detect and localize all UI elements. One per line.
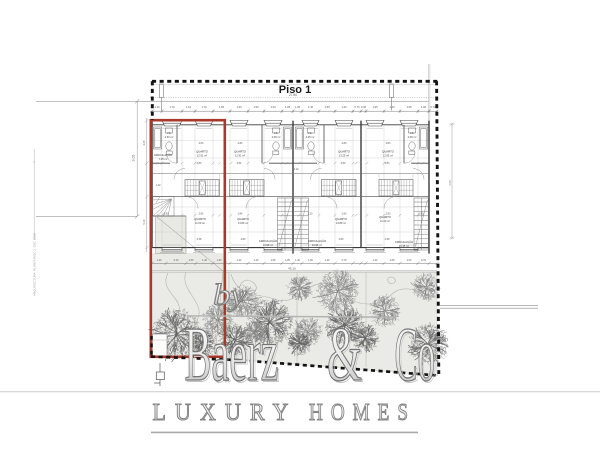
- svg-text:1.65: 1.65: [219, 105, 225, 109]
- svg-text:CIRCULAÇÃO: CIRCULAÇÃO: [395, 239, 414, 244]
- svg-text:45.16: 45.16: [288, 267, 296, 271]
- svg-text:1.50: 1.50: [308, 259, 313, 262]
- svg-text:QUARTO: QUARTO: [379, 215, 392, 219]
- svg-text:ARQUITECTURA PLANTA PISO 1 E: ARQUITECTURA PLANTA PISO 1 ESC 1:100: [33, 233, 37, 296]
- svg-text:0.70: 0.70: [421, 259, 426, 262]
- svg-text:1.65: 1.65: [406, 105, 412, 109]
- svg-text:CIRCULAÇÃO: CIRCULAÇÃO: [154, 152, 173, 157]
- svg-text:1.70: 1.70: [201, 105, 207, 109]
- svg-text:QUARTO: QUARTO: [335, 217, 348, 221]
- svg-text:15.35 m²: 15.35 m²: [399, 244, 409, 248]
- svg-text:0.70: 0.70: [354, 105, 360, 109]
- svg-text:Piso 1: Piso 1: [279, 84, 311, 96]
- svg-text:1.40: 1.40: [202, 259, 207, 262]
- svg-text:4.05 m²: 4.05 m²: [306, 135, 315, 139]
- svg-text:1.40: 1.40: [156, 184, 161, 187]
- svg-text:QUARTO: QUARTO: [382, 150, 395, 154]
- svg-text:2.83: 2.83: [386, 213, 391, 216]
- svg-text:10.96 m²: 10.96 m²: [263, 243, 273, 247]
- svg-text:1.50: 1.50: [253, 105, 259, 109]
- svg-text:&: &: [327, 311, 362, 397]
- svg-text:1.65: 1.65: [390, 259, 395, 262]
- svg-text:4.60 m²: 4.60 m²: [165, 135, 174, 139]
- svg-text:2.80: 2.80: [339, 238, 344, 241]
- svg-text:3.05: 3.05: [448, 180, 452, 186]
- svg-text:1.05: 1.05: [285, 105, 291, 109]
- svg-text:2.80: 2.80: [341, 162, 346, 165]
- svg-text:I.S.: I.S.: [274, 131, 278, 135]
- svg-text:LUXURY: LUXURY: [153, 400, 298, 426]
- svg-text:13.80 m²: 13.80 m²: [238, 221, 248, 225]
- svg-text:2.38: 2.38: [197, 238, 202, 241]
- svg-text:1.40: 1.40: [236, 105, 242, 109]
- svg-text:1.40: 1.40: [254, 259, 259, 262]
- svg-text:4.05 m²: 4.05 m²: [408, 135, 417, 139]
- svg-text:by: by: [213, 277, 246, 312]
- svg-text:13.80 m²: 13.80 m²: [336, 221, 346, 225]
- svg-text:2.80: 2.80: [342, 213, 347, 216]
- svg-text:2.83: 2.83: [385, 162, 390, 165]
- svg-text:2.84: 2.84: [238, 213, 243, 216]
- svg-text:12.91 m²: 12.91 m²: [235, 154, 245, 158]
- svg-text:1.40: 1.40: [308, 105, 314, 109]
- svg-text:1.40: 1.40: [270, 105, 276, 109]
- svg-text:1.50: 1.50: [189, 259, 194, 262]
- svg-text:2.83: 2.83: [199, 142, 204, 145]
- svg-text:1.10: 1.10: [154, 105, 160, 109]
- svg-text:QUARTO: QUARTO: [194, 217, 207, 221]
- svg-text:0.90: 0.90: [164, 213, 169, 216]
- svg-text:13.25 m²: 13.25 m²: [339, 154, 349, 158]
- svg-text:1.00: 1.00: [421, 105, 427, 109]
- svg-text:0.45: 0.45: [361, 105, 367, 109]
- svg-text:2.10: 2.10: [174, 259, 179, 262]
- svg-text:4.05 m²: 4.05 m²: [272, 135, 281, 139]
- svg-text:Co: Co: [395, 311, 436, 397]
- svg-text:2.83: 2.83: [199, 213, 204, 216]
- svg-text:1.65: 1.65: [372, 105, 378, 109]
- svg-text:2.80: 2.80: [241, 238, 246, 241]
- svg-text:2.83: 2.83: [197, 162, 202, 165]
- svg-text:7.05 m²: 7.05 m²: [159, 157, 168, 161]
- svg-text:2.38: 2.38: [385, 238, 390, 241]
- svg-text:QUARTO: QUARTO: [234, 150, 247, 154]
- svg-text:0.70: 0.70: [342, 259, 347, 262]
- svg-text:QUARTO: QUARTO: [196, 150, 209, 154]
- svg-text:CIRCULAÇÃO: CIRCULAÇÃO: [259, 238, 278, 243]
- svg-text:1.05: 1.05: [285, 259, 290, 262]
- svg-text:0.70: 0.70: [430, 105, 436, 109]
- svg-text:3.05: 3.05: [132, 155, 136, 162]
- svg-text:4.25: 4.25: [142, 140, 146, 146]
- svg-text:2.84: 2.84: [237, 162, 242, 165]
- svg-text:1.40: 1.40: [341, 105, 347, 109]
- svg-text:1.70: 1.70: [169, 105, 175, 109]
- svg-text:1.40: 1.40: [237, 259, 242, 262]
- svg-text:CIRCULAÇÃO: CIRCULAÇÃO: [308, 238, 327, 243]
- svg-text:1.00: 1.00: [407, 259, 412, 262]
- svg-text:QUARTO: QUARTO: [338, 150, 351, 154]
- svg-text:I.S.: I.S.: [167, 131, 171, 135]
- svg-text:Baerz: Baerz: [185, 311, 279, 397]
- svg-text:1.40: 1.40: [325, 259, 330, 262]
- svg-text:12.65 m²: 12.65 m²: [383, 154, 393, 158]
- svg-text:I.S.: I.S.: [308, 131, 312, 135]
- svg-text:2.80: 2.80: [342, 142, 347, 145]
- svg-text:2.84: 2.84: [238, 142, 243, 145]
- svg-text:10.96 m²: 10.96 m²: [312, 243, 322, 247]
- svg-text:I.S.: I.S.: [410, 131, 414, 135]
- svg-text:1.40: 1.40: [295, 259, 300, 262]
- svg-text:1.10: 1.10: [308, 213, 313, 216]
- svg-text:1.40: 1.40: [389, 105, 395, 109]
- svg-text:1.05: 1.05: [295, 105, 301, 109]
- svg-text:5.10: 5.10: [142, 219, 146, 225]
- svg-text:QUARTO: QUARTO: [237, 217, 250, 221]
- svg-text:2.83: 2.83: [386, 142, 391, 145]
- svg-text:1.40: 1.40: [217, 259, 222, 262]
- svg-text:1.40: 1.40: [157, 259, 162, 262]
- svg-text:11.60 m²: 11.60 m²: [380, 219, 390, 223]
- svg-text:1.10: 1.10: [294, 168, 299, 171]
- svg-text:HOMES: HOMES: [309, 400, 416, 426]
- svg-text:1.05: 1.05: [271, 259, 276, 262]
- svg-text:1.40: 1.40: [373, 259, 378, 262]
- svg-text:1.10: 1.10: [186, 105, 192, 109]
- svg-text:1.50: 1.50: [324, 105, 330, 109]
- svg-text:12.91 m²: 12.91 m²: [197, 154, 207, 158]
- svg-text:11.60 m²: 11.60 m²: [195, 221, 205, 225]
